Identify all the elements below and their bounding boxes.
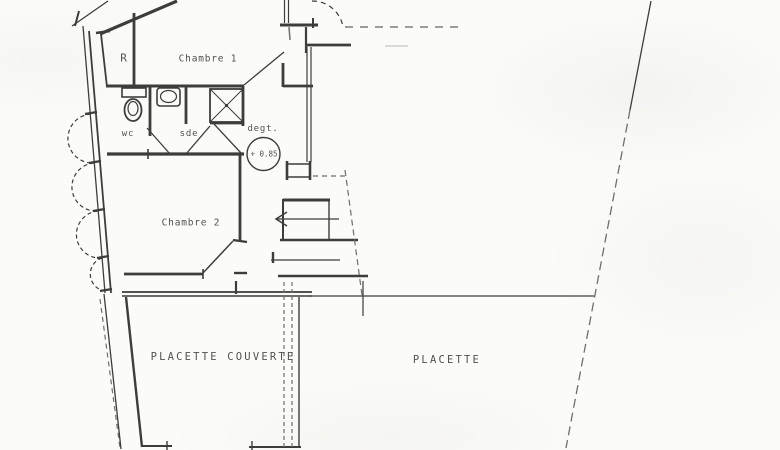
floor-plan-drawing <box>0 0 780 450</box>
ground-wall <box>122 281 594 316</box>
room-r-walls <box>96 1 177 87</box>
label-degt: degt. <box>247 124 278 134</box>
label-placette-couverte: PLACETTE COUVERTE <box>151 351 296 363</box>
roof-dashed-line <box>345 27 462 46</box>
label-level: + 0.85 <box>250 150 277 159</box>
toilet-icon <box>122 88 146 121</box>
label-wc: wc <box>122 129 134 139</box>
chambre2-walls <box>124 154 247 279</box>
staircase <box>271 170 368 295</box>
sink-icon <box>157 88 180 106</box>
entry-walls <box>280 0 351 180</box>
right-boundary-line <box>566 1 651 448</box>
label-room-r: R <box>120 52 127 65</box>
floor-plan-canvas: R Chambre 1 wc sde degt. + 0.85 Chambre … <box>0 0 780 450</box>
label-placette: PLACETTE <box>413 354 481 366</box>
placette-couverte-walls <box>126 282 301 450</box>
shower-icon <box>210 89 243 122</box>
door-swing-arc <box>312 1 343 27</box>
label-chambre-2: Chambre 2 <box>162 218 221 229</box>
hall-wall <box>107 149 244 159</box>
window-swing-arcs <box>68 114 105 291</box>
label-chambre-1: Chambre 1 <box>179 54 238 65</box>
left-boundary-wall <box>72 1 121 449</box>
label-sde: sde <box>180 129 199 139</box>
